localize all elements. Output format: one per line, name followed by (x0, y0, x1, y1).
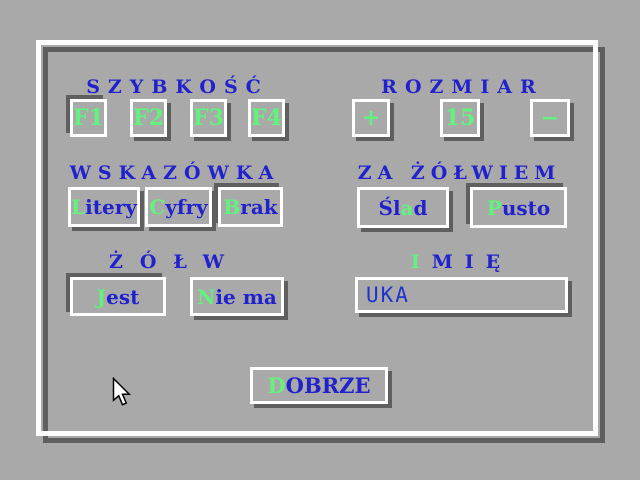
turtle-jest-button[interactable]: Jest (70, 277, 166, 316)
speed-f4-button[interactable]: F4 (248, 99, 285, 137)
hint-heading: WSKAZÓWKA (65, 164, 285, 182)
mouse-cursor-icon (112, 377, 133, 407)
size-value-display: 15 (440, 99, 480, 137)
trail-slad-button[interactable]: Ślad (357, 187, 449, 228)
name-heading: IMIĘ (355, 253, 568, 271)
hint-brak-button[interactable]: Brak (218, 187, 283, 227)
name-input[interactable]: UKA (355, 277, 568, 313)
speed-heading: SZYBKOŚĆ (65, 78, 290, 96)
speed-f3-button[interactable]: F3 (190, 99, 227, 137)
size-decrease-button[interactable]: − (530, 99, 570, 137)
speed-f2-button[interactable]: F2 (130, 99, 167, 137)
size-increase-button[interactable]: + (352, 99, 390, 137)
ok-button[interactable]: DOBRZE (250, 367, 388, 404)
hint-litery-button[interactable]: Litery (68, 187, 140, 227)
speed-f1-button[interactable]: F1 (70, 99, 107, 137)
trail-heading: ZA ŻÓŁWIEM (352, 164, 567, 182)
size-heading: ROZMIAR (355, 78, 570, 96)
hint-cyfry-button[interactable]: Cyfry (145, 187, 212, 227)
turtle-niema-button[interactable]: Nie ma (190, 277, 284, 316)
settings-dialog-screen: SZYBKOŚĆ F1 F2 F3 F4 ROZMIAR + 15 − WSKA… (0, 0, 640, 480)
turtle-heading: ŻÓŁW (65, 253, 285, 271)
trail-pusto-button[interactable]: Pusto (470, 187, 567, 228)
